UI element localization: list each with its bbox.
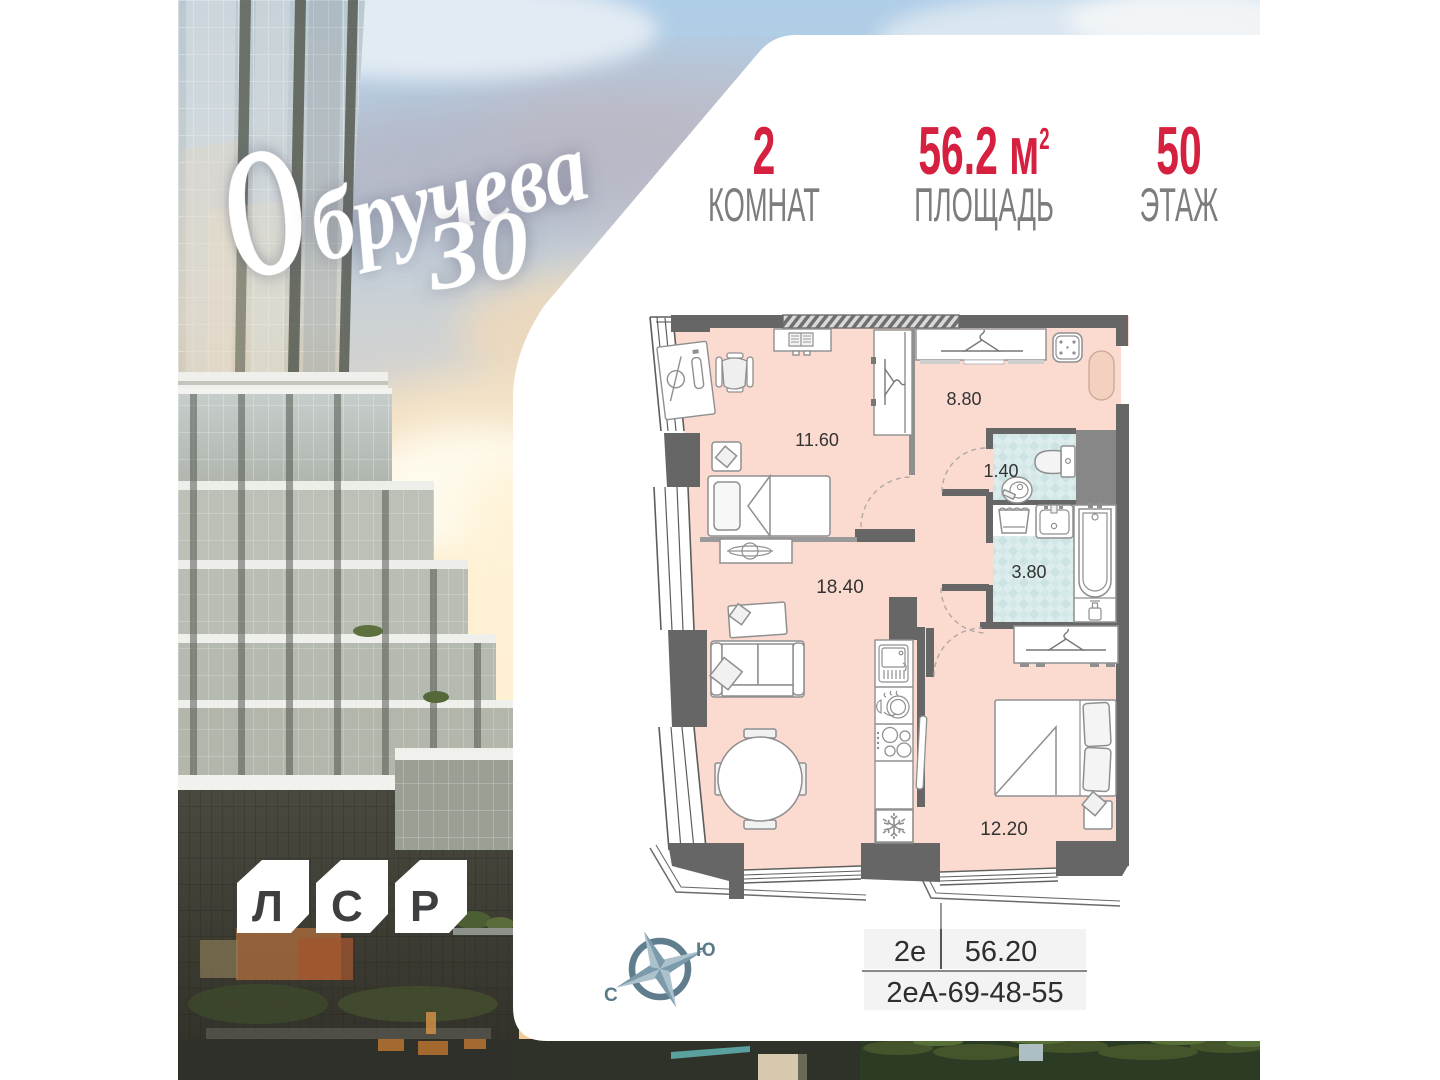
svg-text:30: 30 xyxy=(418,189,537,311)
svg-text:3.80: 3.80 xyxy=(1011,562,1046,582)
svg-text:С: С xyxy=(604,985,618,1006)
svg-text:8.80: 8.80 xyxy=(946,389,981,409)
svg-text:Л: Л xyxy=(252,882,283,931)
svg-text:18.40: 18.40 xyxy=(816,577,864,598)
svg-text:Р: Р xyxy=(410,882,439,931)
svg-text:1.40: 1.40 xyxy=(983,461,1018,481)
svg-text:С: С xyxy=(331,882,363,931)
svg-text:12.20: 12.20 xyxy=(980,819,1028,840)
svg-text:Ю: Ю xyxy=(696,940,716,961)
svg-text:11.60: 11.60 xyxy=(795,430,839,450)
